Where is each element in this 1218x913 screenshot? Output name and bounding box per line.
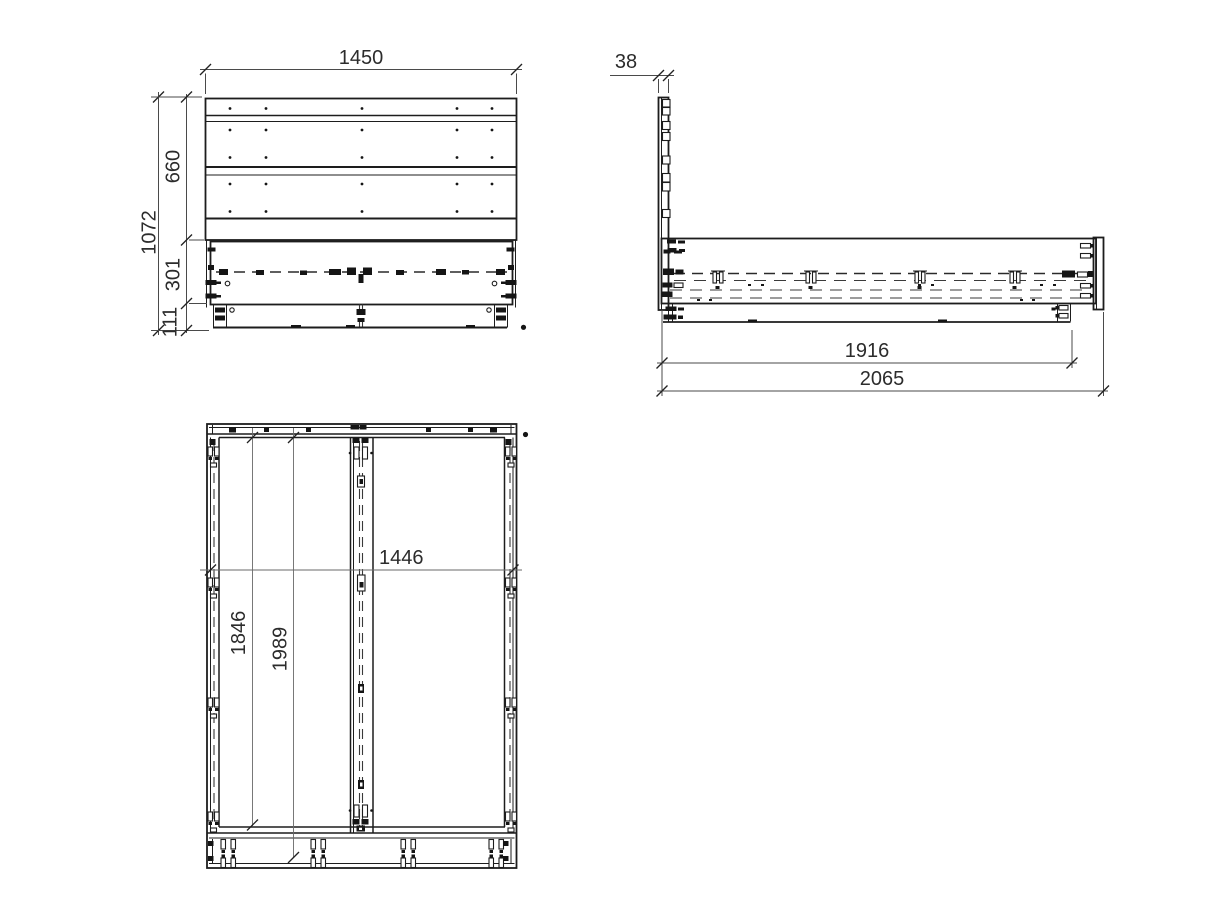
dim-front-headboard-height: 660 bbox=[163, 150, 185, 183]
front-rail-assembly bbox=[206, 240, 517, 308]
side-headboard-panel bbox=[659, 98, 686, 311]
dim-front-base-height: 111 bbox=[160, 307, 182, 337]
dim-side-total-length: 2065 bbox=[860, 368, 905, 390]
dim-plan-total-length: 1989 bbox=[270, 627, 292, 672]
side-rail bbox=[662, 239, 1097, 304]
dim-plan-inner-length: 1846 bbox=[228, 611, 250, 656]
front-screw-dots bbox=[229, 107, 494, 213]
dim-plan-inner-width: 1446 bbox=[379, 547, 424, 569]
plan-dimensions: 1446 1846 1989 bbox=[200, 428, 522, 863]
plan-center-rail bbox=[349, 438, 373, 834]
drawing-svg: 1450 1072 660 301 111 bbox=[0, 0, 1218, 913]
side-view: 38 1916 2065 bbox=[610, 51, 1109, 397]
dim-front-total-height: 1072 bbox=[139, 210, 161, 255]
dim-side-frame-length: 1916 bbox=[845, 340, 890, 362]
dim-side-thickness: 38 bbox=[615, 51, 637, 73]
dim-front-rail-height: 301 bbox=[163, 258, 185, 291]
front-dimensions: 1450 1072 660 301 111 bbox=[139, 47, 523, 337]
front-view: 1450 1072 660 301 111 bbox=[139, 47, 527, 337]
reference-dot-front bbox=[521, 325, 526, 330]
side-dimensions: 38 1916 2065 bbox=[610, 51, 1109, 397]
technical-drawing-canvas: 1450 1072 660 301 111 bbox=[0, 0, 1218, 913]
plan-view: 1446 1846 1989 bbox=[200, 424, 528, 868]
plan-headboard-strip bbox=[207, 827, 517, 868]
dim-front-width: 1450 bbox=[339, 47, 384, 69]
front-legs-and-base bbox=[213, 305, 526, 330]
side-legs-and-floor bbox=[663, 304, 1071, 323]
front-headboard bbox=[206, 99, 517, 241]
reference-dot-plan bbox=[523, 432, 528, 437]
plan-outline bbox=[207, 424, 517, 868]
